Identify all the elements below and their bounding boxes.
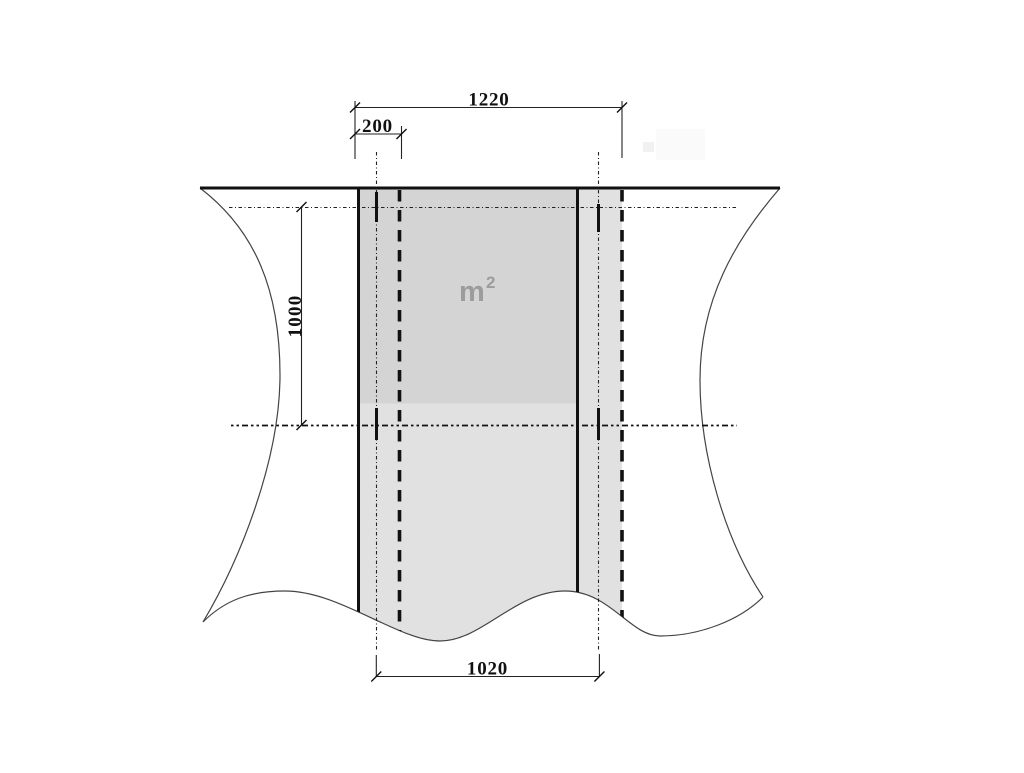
svg-text:1020: 1020 [467, 659, 508, 680]
svg-text:1220: 1220 [468, 90, 509, 111]
svg-text:2: 2 [486, 273, 495, 292]
svg-text:1000: 1000 [285, 295, 306, 338]
svg-text:200: 200 [362, 116, 393, 137]
svg-text:m: m [459, 276, 485, 308]
